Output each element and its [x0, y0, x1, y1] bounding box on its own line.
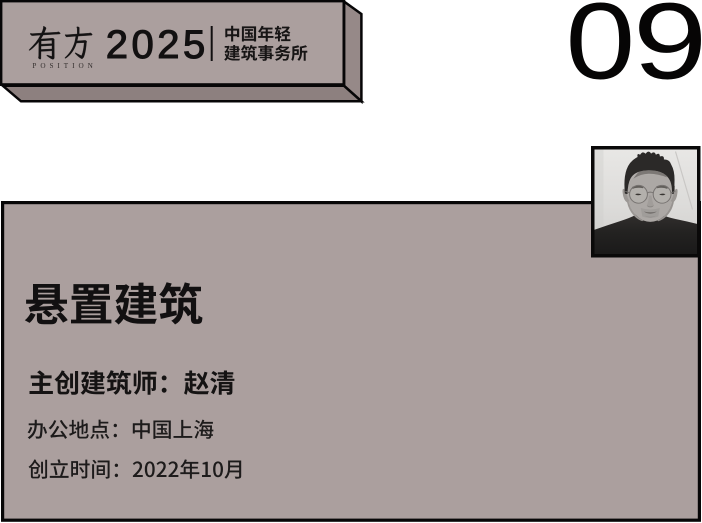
svg-text:9: 9 — [633, 0, 702, 102]
svg-text:2025: 2025 — [106, 23, 209, 67]
svg-text:0: 0 — [566, 0, 636, 102]
svg-text:POSITION: POSITION — [32, 62, 96, 70]
